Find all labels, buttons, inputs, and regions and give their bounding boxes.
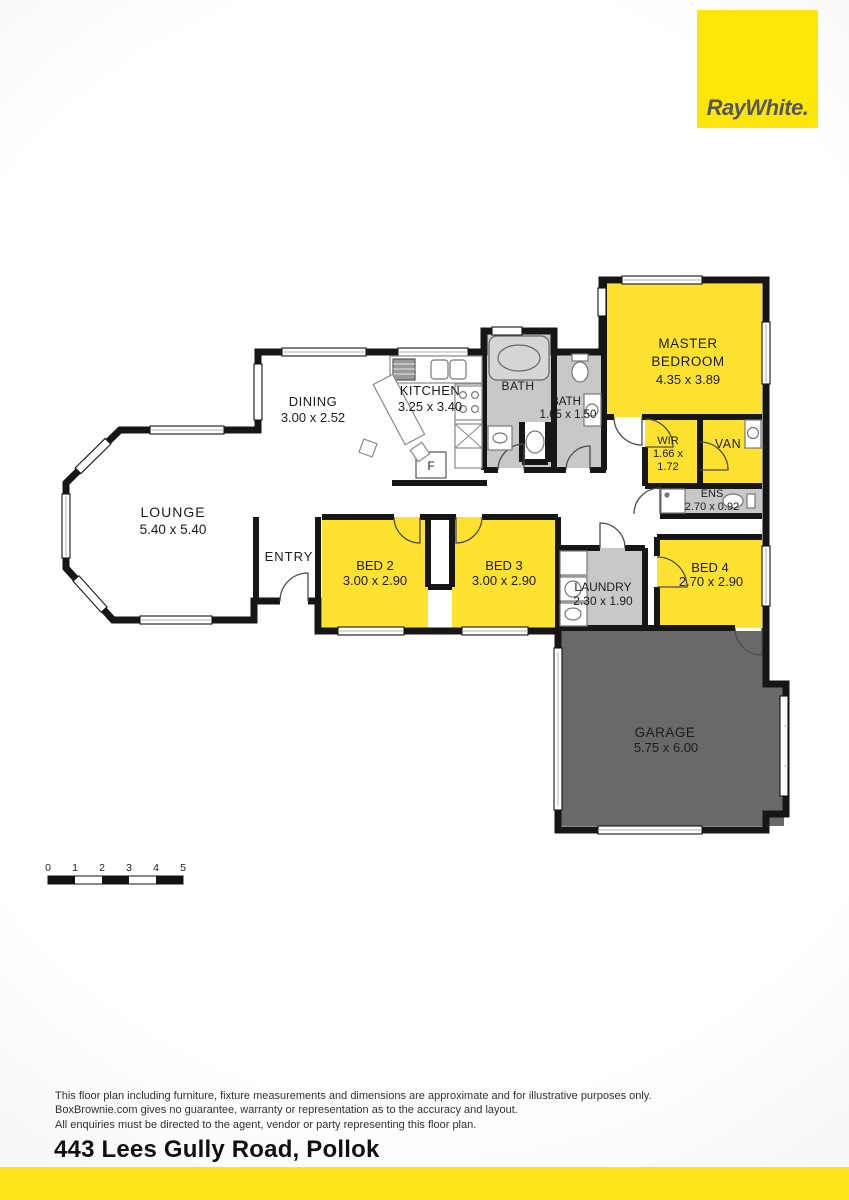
scale-bar-segment xyxy=(48,876,75,884)
room-label-bed3: BED 3 xyxy=(485,558,523,573)
kitchen-sink-icon xyxy=(450,360,466,379)
vanity-icon xyxy=(748,428,759,439)
room-dims-dining: 3.00 x 2.52 xyxy=(281,410,345,425)
stove-burner-icon xyxy=(472,406,479,413)
footer-accent-bar xyxy=(0,1167,849,1200)
disclaimer: This floor plan including furniture, fix… xyxy=(55,1089,655,1132)
scale-tick: 2 xyxy=(99,862,105,874)
disclaimer-line: All enquiries must be directed to the ag… xyxy=(55,1118,655,1132)
room-label-bed2: BED 2 xyxy=(356,558,394,573)
room-dims-bed3: 3.00 x 2.90 xyxy=(472,573,536,588)
shower-icon xyxy=(665,493,669,497)
room-label-laundry: LAUNDRY xyxy=(574,580,631,594)
room-dims-lounge: 5.40 x 5.40 xyxy=(140,522,207,537)
room-label-lounge: LOUNGE xyxy=(140,504,205,520)
room-dims-garage: 5.75 x 6.00 xyxy=(634,740,698,755)
sink-icon xyxy=(493,433,507,443)
disclaimer-line: BoxBrownie.com gives no guarantee, warra… xyxy=(55,1103,655,1117)
stove-burner-icon xyxy=(460,392,467,399)
room-dims-wir-line2: 1.72 xyxy=(657,461,678,473)
scale-tick: 4 xyxy=(153,862,159,874)
room-label-kitchen: KITCHEN xyxy=(400,383,461,398)
room-label-entry: ENTRY xyxy=(265,549,314,564)
window xyxy=(780,696,788,796)
room-dims-master: 4.35 x 3.89 xyxy=(656,372,720,387)
room-dims-wir-line1: 1.66 x xyxy=(653,448,683,460)
room-dims-kitchen: 3.25 x 3.40 xyxy=(398,399,462,414)
stove-burner-icon xyxy=(472,392,479,399)
room-label-master-line2: BEDROOM xyxy=(651,354,724,369)
room-label-wir: WIR xyxy=(657,435,678,447)
fridge-label: F xyxy=(427,461,434,473)
room-label-bath-main: BATH xyxy=(501,379,534,393)
toilet-icon xyxy=(747,494,755,508)
room-dims-ens: 2.70 x 0.92 xyxy=(685,501,739,513)
scale-bar: 0 1 2 3 4 5 xyxy=(45,862,186,884)
room-label-bed4: BED 4 xyxy=(691,560,729,575)
room-label-bath2: BATH xyxy=(551,396,581,408)
room-dims-bath2: 1.65 x 1.50 xyxy=(540,409,597,421)
page: RayWhite. xyxy=(0,0,849,1200)
scale-tick: 1 xyxy=(72,862,78,874)
window xyxy=(598,288,606,316)
disclaimer-line: This floor plan including furniture, fix… xyxy=(55,1089,655,1103)
room-dims-laundry: 2.30 x 1.90 xyxy=(573,594,633,608)
toilet-icon xyxy=(572,354,588,361)
front-door-opening xyxy=(280,597,308,605)
room-dims-bed2: 3.00 x 2.90 xyxy=(343,573,407,588)
scale-bar-segment xyxy=(156,876,183,884)
room-label-dining: DINING xyxy=(289,394,338,409)
scale-tick: 5 xyxy=(180,862,186,874)
window xyxy=(492,327,522,335)
scale-bar-segment xyxy=(102,876,129,884)
dryer-icon xyxy=(565,608,581,620)
scale-tick: 0 xyxy=(45,862,51,874)
shower-icon xyxy=(661,489,685,513)
room-label-van: VAN xyxy=(715,437,741,451)
room-label-garage: GARAGE xyxy=(635,725,696,740)
property-address: 443 Lees Gully Road, Pollok xyxy=(54,1136,380,1164)
scale-tick: 3 xyxy=(126,862,132,874)
room-label-master-line1: MASTER xyxy=(658,336,717,351)
window xyxy=(254,364,262,420)
room-label-ens: ENS xyxy=(701,488,724,500)
room-dims-bed4: 2.70 x 2.90 xyxy=(679,574,743,589)
kitchen-sink-icon xyxy=(431,360,448,379)
laundry-tub-icon xyxy=(560,551,587,575)
floor-plan: LOUNGE 5.40 x 5.40 DINING 3.00 x 2.52 KI… xyxy=(0,0,849,1200)
toilet-icon xyxy=(526,431,544,453)
toilet-icon xyxy=(572,362,588,382)
